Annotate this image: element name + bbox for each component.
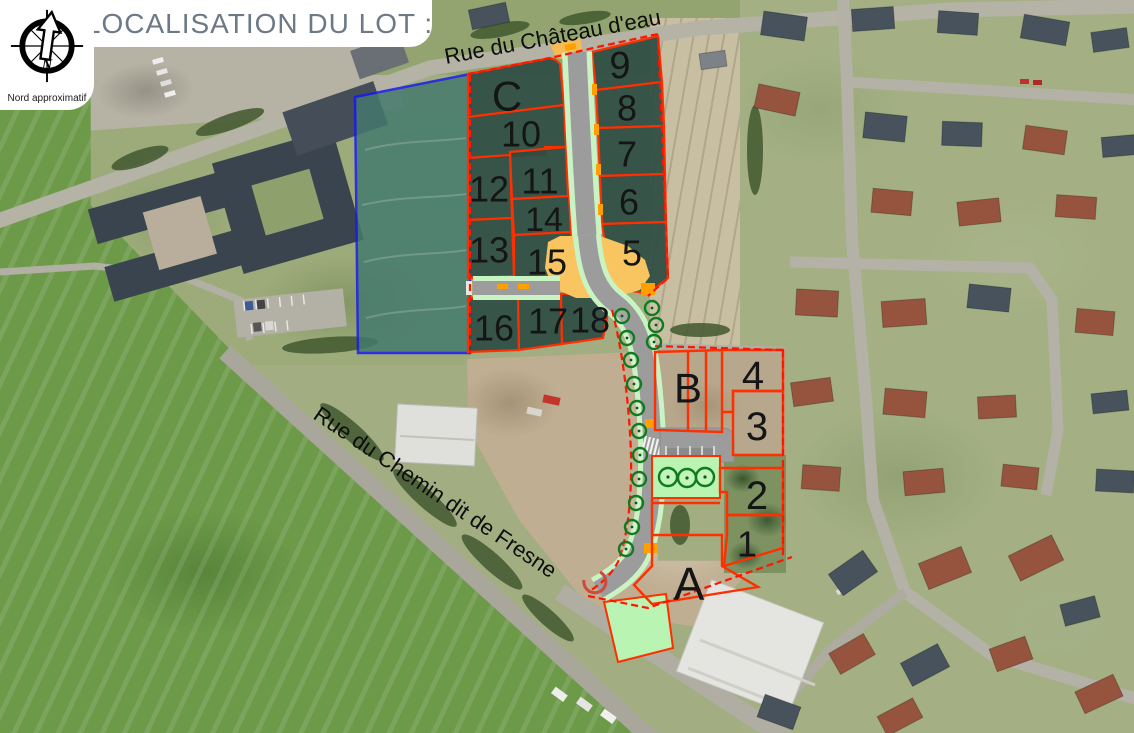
lot-label-3: 3	[746, 405, 768, 449]
lot-label-13: 13	[469, 230, 509, 271]
lot-label-A: A	[674, 558, 705, 610]
lot-label-16: 16	[474, 308, 514, 349]
lot-label-B: B	[674, 365, 702, 412]
lot-label-8: 8	[617, 88, 637, 129]
lot-label-2: 2	[746, 474, 768, 518]
study-area-blue-polygon	[355, 74, 470, 353]
lot-label-12: 12	[469, 169, 509, 210]
compass-panel: N Nord approximatif	[0, 0, 94, 110]
lot-label-15: 15	[527, 242, 567, 283]
compass-rose-icon: N	[9, 8, 85, 84]
lot-label-11: 11	[521, 161, 558, 202]
title-panel: LOCALISATION DU LOT :	[86, 0, 432, 47]
lot-label-4: 4	[742, 354, 764, 398]
lot-label-14: 14	[525, 201, 563, 239]
lot-label-17: 17	[528, 301, 568, 342]
lot-label-C: C	[492, 73, 522, 120]
lot-plan-overlay: Rue du Château d'eau Rue du Chemin dit d…	[0, 0, 1134, 733]
lot-label-1: 1	[737, 524, 757, 565]
lot-label-10: 10	[501, 114, 541, 155]
street-label-chemin-de-fresne: Rue du Chemin dit de Fresne	[309, 401, 561, 582]
lot-label-5: 5	[622, 233, 642, 274]
compass-label: Nord approximatif	[0, 93, 94, 104]
lot-label-7: 7	[617, 134, 637, 175]
page-title: LOCALISATION DU LOT :	[85, 8, 433, 40]
lot-label-18: 18	[570, 300, 610, 341]
svg-text:N: N	[41, 57, 53, 73]
lot-label-6: 6	[619, 182, 639, 223]
aerial-map: Rue du Château d'eau Rue du Chemin dit d…	[0, 0, 1134, 733]
lot-label-9: 9	[609, 45, 630, 87]
